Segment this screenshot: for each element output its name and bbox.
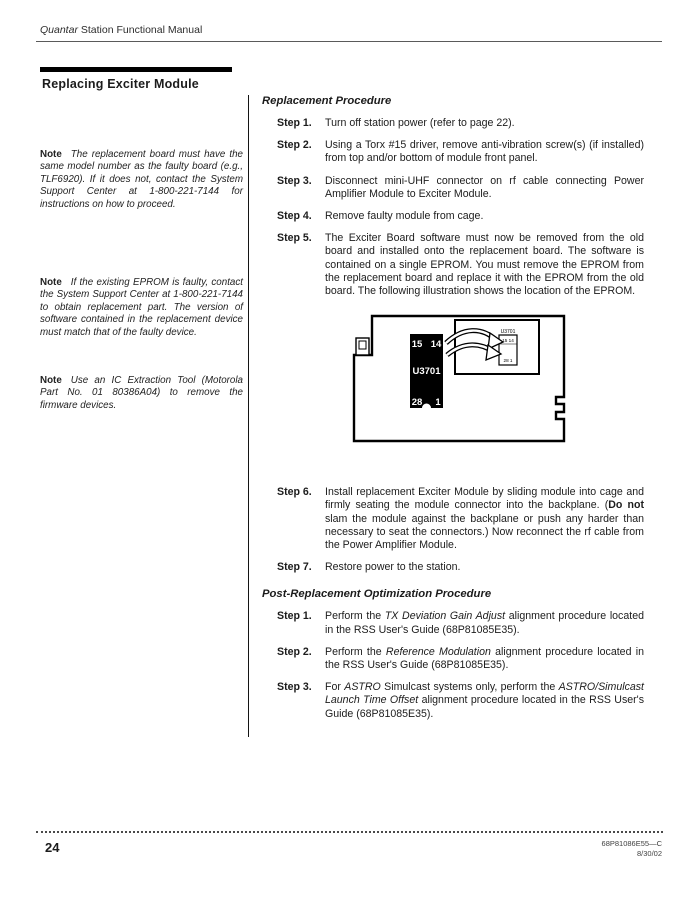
replacement-procedure-title: Replacement Procedure xyxy=(262,95,644,107)
board-mount-tab-inner xyxy=(359,341,366,349)
step-row: Step 1.Perform the TX Deviation Gain Adj… xyxy=(262,610,644,636)
step-label: Step 7. xyxy=(277,561,325,574)
step-text: Perform the Reference Modulation alignme… xyxy=(325,646,644,672)
header-rule xyxy=(36,41,662,42)
step-text: Install replacement Exciter Module by sl… xyxy=(325,486,644,552)
step-label: Step 2. xyxy=(277,139,325,165)
note-text: If the existing EPROM is faulty, contact… xyxy=(40,277,243,338)
chip-ref-designator: U3701 xyxy=(413,366,442,377)
step-text: Restore power to the station. xyxy=(325,561,644,574)
procedure-column: Replacement Procedure Step 1.Turn off st… xyxy=(262,95,644,721)
step-label: Step 6. xyxy=(277,486,325,552)
section-title-bar xyxy=(40,67,232,72)
note-text: The replacement board must have the same… xyxy=(40,149,243,210)
step-row: Step 3.Disconnect mini-UHF connector on … xyxy=(262,175,644,201)
step-text: The Exciter Board software must now be r… xyxy=(325,232,644,298)
note-text: Use an IC Extraction Tool (Motorola Part… xyxy=(40,375,243,411)
step-row: Step 2.Perform the Reference Modulation … xyxy=(262,646,644,672)
step-label: Step 3. xyxy=(277,681,325,721)
step-text: Using a Torx #15 driver, remove anti-vib… xyxy=(325,139,644,165)
step-label: Step 4. xyxy=(277,210,325,223)
running-header: Quantar Station Functional Manual xyxy=(40,24,202,36)
page-number: 24 xyxy=(45,840,59,855)
step-text: Turn off station power (refer to page 22… xyxy=(325,117,644,130)
doc-reference: 68P81086E55—C 8/30/02 xyxy=(602,839,662,859)
note-label: Note xyxy=(40,149,71,160)
chip-pin-15: 15 xyxy=(412,339,423,350)
step-row: Step 3.For ASTRO Simulcast systems only,… xyxy=(262,681,644,721)
eprom-location-figure: 15 14 U3701 28 1 U3701 15 14 28 1 xyxy=(351,311,566,443)
step-label: Step 1. xyxy=(277,610,325,636)
chip-pin-1: 1 xyxy=(435,397,441,408)
doc-number: 68P81086E55—C xyxy=(602,839,662,849)
step-row: Step 4.Remove faulty module from cage. xyxy=(262,210,644,223)
page-title: Replacing Exciter Module xyxy=(42,77,199,91)
step-text: Disconnect mini-UHF connector on rf cabl… xyxy=(325,175,644,201)
doc-date: 8/30/02 xyxy=(602,849,662,859)
step-text: Remove faulty module from cage. xyxy=(325,210,644,223)
step-label: Step 3. xyxy=(277,175,325,201)
step-label: Step 2. xyxy=(277,646,325,672)
chip-pin1-notch xyxy=(422,404,431,413)
post-replacement-steps: Step 1.Perform the TX Deviation Gain Adj… xyxy=(262,610,644,720)
step-text: Perform the TX Deviation Gain Adjust ali… xyxy=(325,610,644,636)
chip-pin-14: 14 xyxy=(431,339,442,350)
inset-pins-top: 15 14 xyxy=(502,338,514,343)
inset-pins-bottom: 28 1 xyxy=(504,358,513,363)
step-label: Step 1. xyxy=(277,117,325,130)
replacement-steps-continued: Step 6.Install replacement Exciter Modul… xyxy=(262,486,644,574)
note-label: Note xyxy=(40,277,71,288)
note-paragraph: NoteIf the existing EPROM is faulty, con… xyxy=(40,277,243,339)
step-text: For ASTRO Simulcast systems only, perfor… xyxy=(325,681,644,721)
step-label: Step 5. xyxy=(277,232,325,298)
note-label: Note xyxy=(40,375,71,386)
manual-name-italic: Quantar xyxy=(40,24,78,36)
replacement-steps: Step 1.Turn off station power (refer to … xyxy=(262,117,644,298)
column-divider xyxy=(248,95,249,737)
note-paragraph: NoteUse an IC Extraction Tool (Motorola … xyxy=(40,375,243,412)
step-row: Step 7.Restore power to the station. xyxy=(262,561,644,574)
manual-page: Quantar Station Functional Manual Replac… xyxy=(0,0,695,899)
step-row: Step 5.The Exciter Board software must n… xyxy=(262,232,644,298)
inset-ref-designator: U3701 xyxy=(501,329,516,335)
step-row: Step 2.Using a Torx #15 driver, remove a… xyxy=(262,139,644,165)
chip-pin-28: 28 xyxy=(412,397,423,408)
manual-name-rest: Station Functional Manual xyxy=(78,24,202,36)
step-row: Step 1.Turn off station power (refer to … xyxy=(262,117,644,130)
step-row: Step 6.Install replacement Exciter Modul… xyxy=(262,486,644,552)
footer-rule xyxy=(36,831,663,833)
notes-column: NoteThe replacement board must have the … xyxy=(40,149,243,412)
note-paragraph: NoteThe replacement board must have the … xyxy=(40,149,243,211)
post-replacement-title: Post-Replacement Optimization Procedure xyxy=(262,588,644,600)
